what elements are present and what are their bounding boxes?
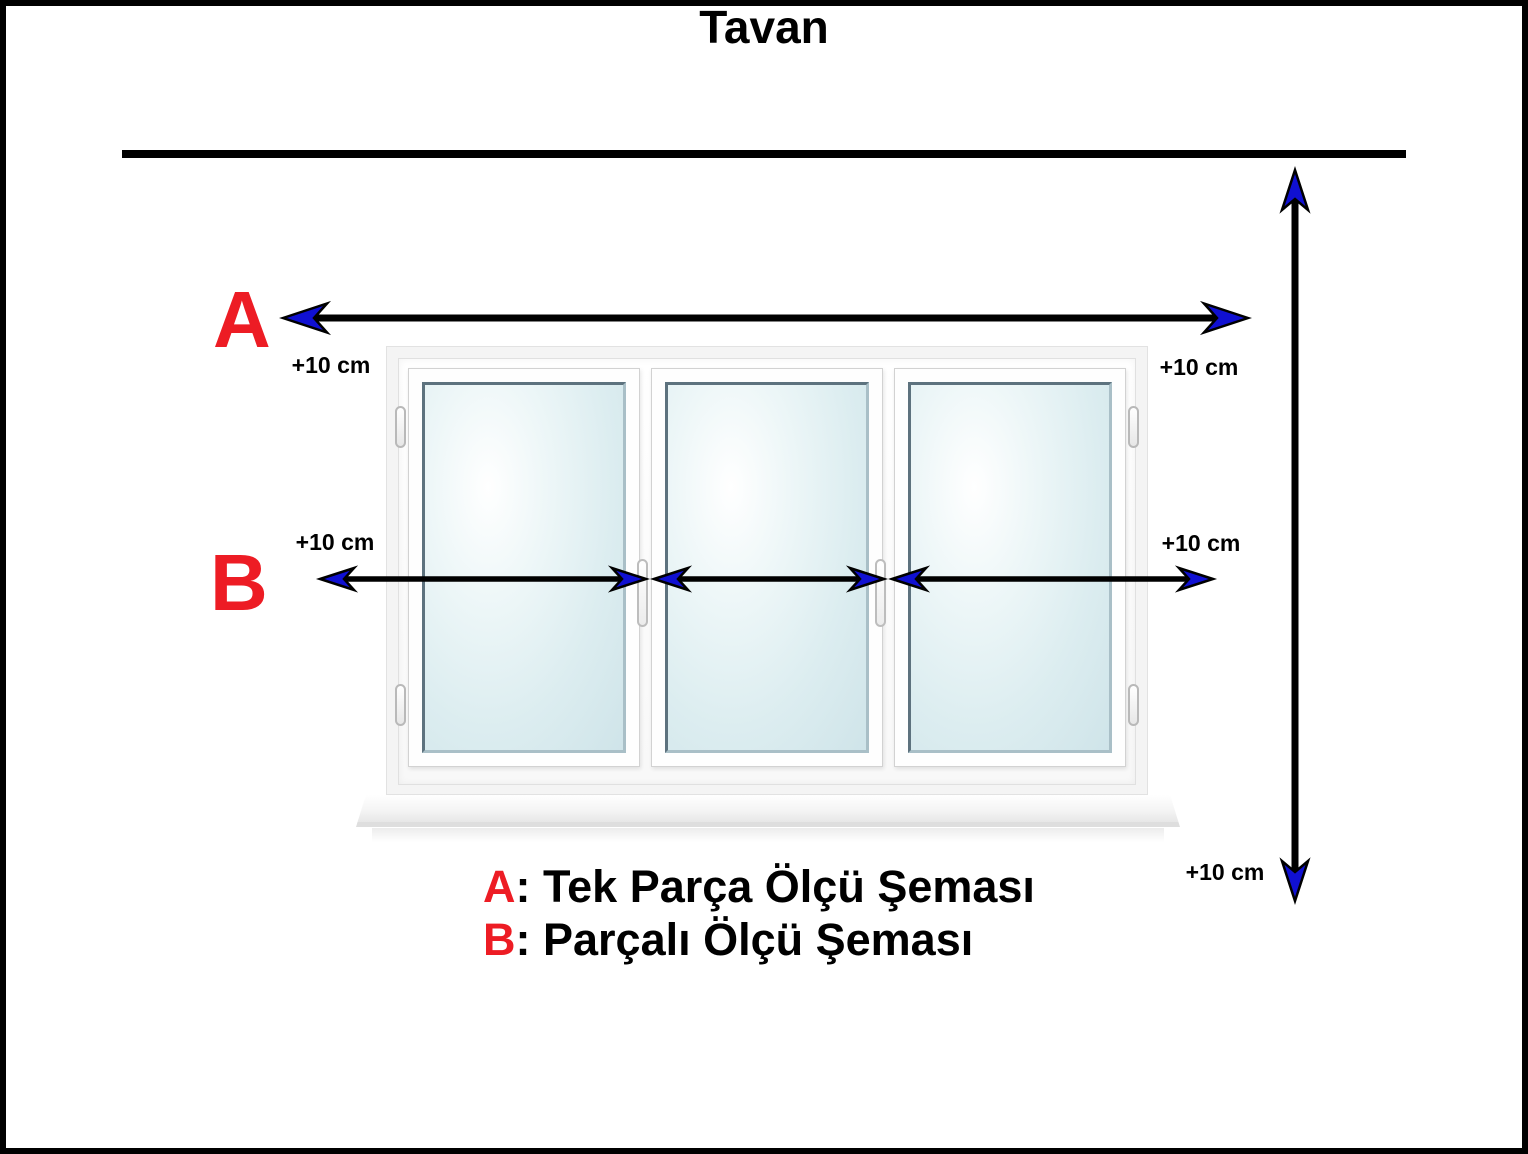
legend-text-b: : Parçalı Ölçü Şeması xyxy=(516,914,974,965)
window-glass-right xyxy=(908,382,1112,753)
window-sash-right xyxy=(894,368,1126,767)
legend-line-a: A: Tek Parça Ölçü Şeması xyxy=(483,860,1035,913)
window-sash-left xyxy=(408,368,640,767)
window-sill-shadow xyxy=(372,828,1164,842)
window-handle-mullion-1 xyxy=(637,559,648,627)
arrow-a-full-width xyxy=(283,304,1248,333)
window-hinge-right-bottom xyxy=(1128,684,1139,726)
window-sash-middle xyxy=(651,368,883,767)
legend-key-b: B xyxy=(483,914,516,965)
ceiling-line xyxy=(122,150,1406,158)
window-hinge-left-top xyxy=(395,406,406,448)
window-glass-left xyxy=(422,382,626,753)
window-illustration xyxy=(386,346,1148,795)
arrow-height-vertical xyxy=(1282,170,1308,901)
ceiling-title: Tavan xyxy=(0,0,1528,54)
label-b-plus10-right: +10 cm xyxy=(1156,531,1246,556)
label-a-plus10-right: +10 cm xyxy=(1154,355,1244,380)
window-hinge-right-top xyxy=(1128,406,1139,448)
legend-key-a: A xyxy=(483,861,516,912)
window-sill xyxy=(356,795,1180,827)
label-a-plus10-left: +10 cm xyxy=(286,353,376,378)
window-handle-mullion-2 xyxy=(875,559,886,627)
window-sashes xyxy=(408,368,1126,767)
measurement-diagram: Tavan A B +10 cm +10 cm +10 cm +10 cm +1… xyxy=(0,0,1528,1154)
window-hinge-left-bottom xyxy=(395,684,406,726)
window-glass-middle xyxy=(665,382,869,753)
legend: A: Tek Parça Ölçü Şeması B: Parçalı Ölçü… xyxy=(483,860,1035,966)
marker-b: B xyxy=(210,543,268,623)
marker-a: A xyxy=(213,280,271,360)
label-b-plus10-left: +10 cm xyxy=(290,530,380,555)
legend-line-b: B: Parçalı Ölçü Şeması xyxy=(483,913,1035,966)
label-height-plus10-bottom: +10 cm xyxy=(1180,860,1270,885)
legend-text-a: : Tek Parça Ölçü Şeması xyxy=(516,861,1035,912)
